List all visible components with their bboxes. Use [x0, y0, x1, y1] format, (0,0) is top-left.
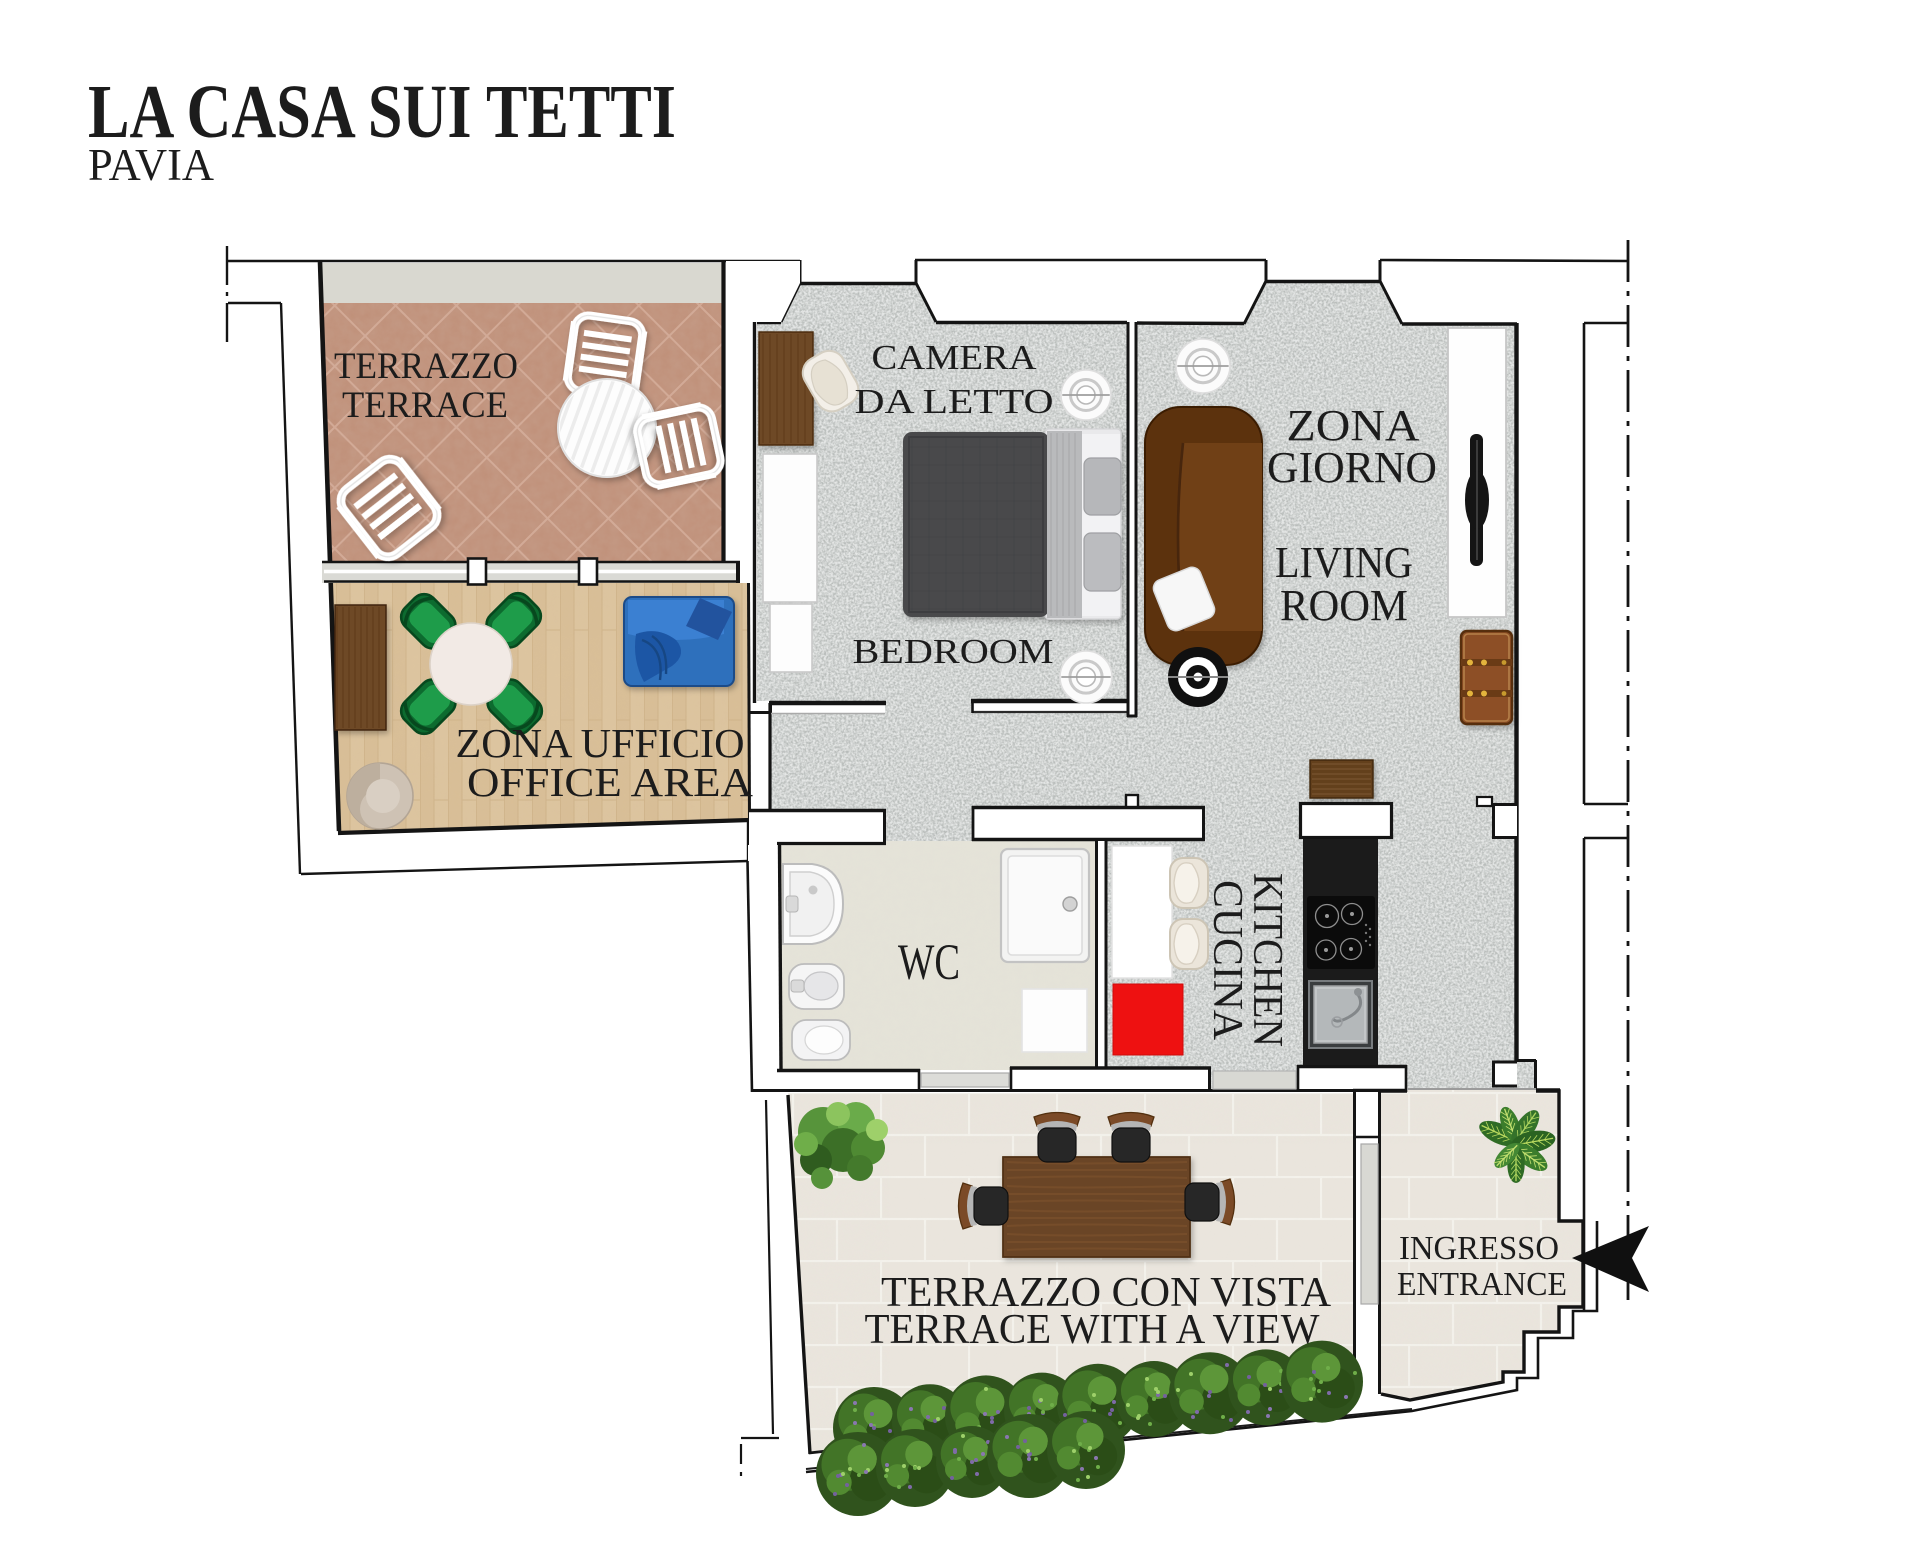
svg-text:ROOM: ROOM [1280, 581, 1408, 630]
svg-text:TERRACE: TERRACE [342, 385, 508, 426]
svg-text:WC: WC [898, 935, 960, 991]
svg-text:DA LETTO: DA LETTO [855, 382, 1054, 421]
svg-text:CUCINA: CUCINA [1204, 880, 1250, 1041]
svg-text:OFFICE AREA: OFFICE AREA [467, 759, 753, 805]
svg-text:GIORNO: GIORNO [1267, 443, 1437, 492]
svg-text:KITCHEN: KITCHEN [1244, 873, 1290, 1047]
svg-text:LIVING: LIVING [1275, 538, 1413, 587]
svg-text:TERRACE WITH A VIEW: TERRACE WITH A VIEW [865, 1307, 1320, 1353]
svg-text:PAVIA: PAVIA [88, 140, 214, 190]
svg-text:INGRESSO: INGRESSO [1399, 1230, 1559, 1267]
svg-text:TERRAZZO: TERRAZZO [334, 346, 518, 387]
svg-text:BEDROOM: BEDROOM [853, 632, 1054, 671]
svg-text:CAMERA: CAMERA [872, 338, 1038, 377]
svg-text:ENTRANCE: ENTRANCE [1397, 1266, 1567, 1303]
